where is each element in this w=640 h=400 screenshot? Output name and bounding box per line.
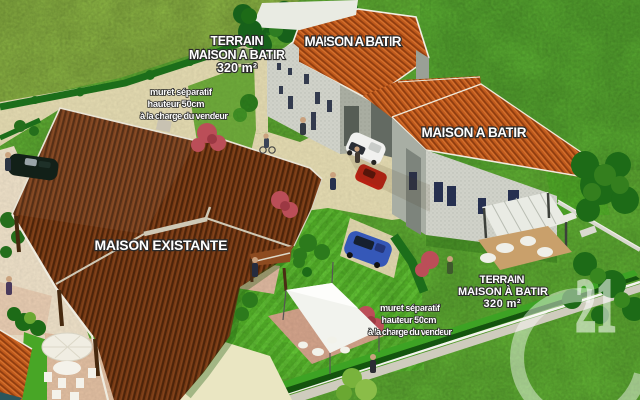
svg-text:hauteur 50cm: hauteur 50cm	[148, 98, 205, 109]
svg-text:TERRAIN: TERRAIN	[211, 34, 264, 48]
svg-text:320 m²: 320 m²	[484, 298, 521, 310]
svg-text:MAISON A BATIR: MAISON A BATIR	[305, 34, 402, 49]
svg-text:MAISON EXISTANTE: MAISON EXISTANTE	[95, 237, 228, 253]
svg-text:320 m²: 320 m²	[217, 61, 257, 75]
svg-text:muret séparatif: muret séparatif	[380, 302, 441, 313]
svg-text:muret séparatif: muret séparatif	[150, 86, 213, 97]
svg-text:MAISON A BATIR: MAISON A BATIR	[422, 125, 527, 140]
svg-text:hauteur 50cm: hauteur 50cm	[382, 314, 437, 325]
svg-text:MAISON A BATIR: MAISON A BATIR	[189, 48, 285, 62]
svg-text:MAISON À BATIR: MAISON À BATIR	[458, 285, 548, 298]
svg-text:TERRAIN: TERRAIN	[480, 274, 525, 286]
svg-text:à la charge du vendeur: à la charge du vendeur	[368, 326, 452, 337]
svg-text:à la charge du vendeur: à la charge du vendeur	[140, 110, 228, 121]
svg-text:21: 21	[576, 264, 617, 348]
